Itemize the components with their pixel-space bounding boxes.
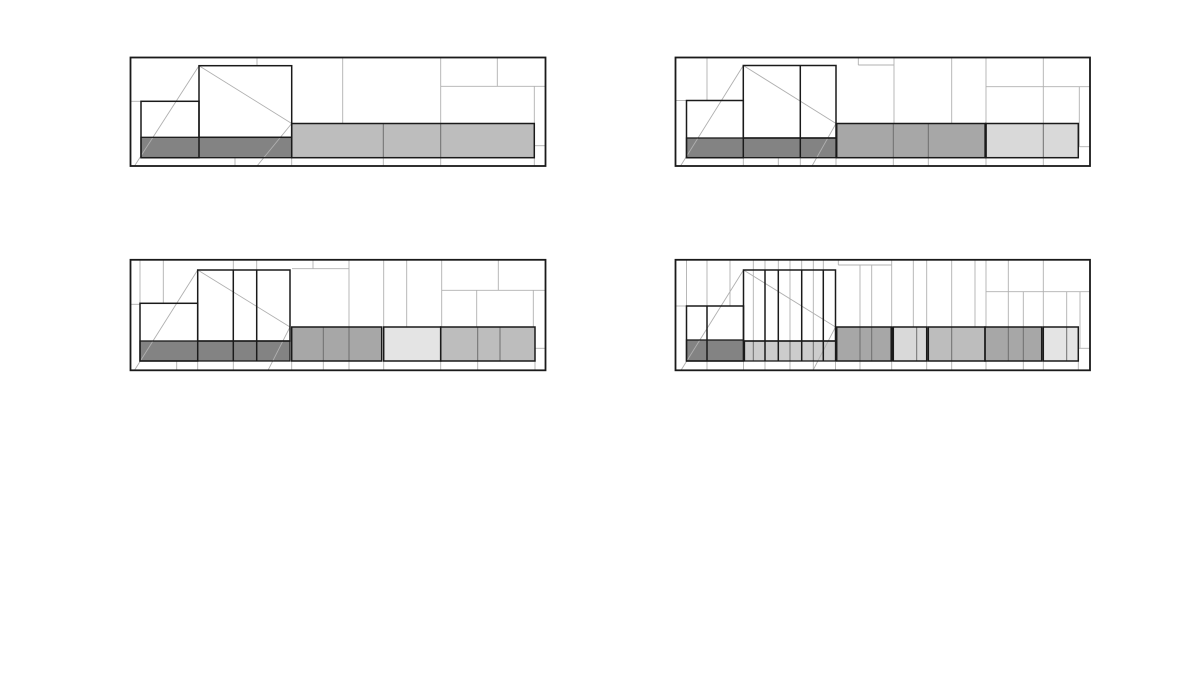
shaded-cell xyxy=(384,327,441,361)
subdivision-line xyxy=(199,66,292,124)
shaded-cell xyxy=(837,124,894,158)
shaded-cell xyxy=(928,327,951,361)
shaded-cell xyxy=(893,327,916,361)
shaded-cell xyxy=(985,327,1008,361)
shaded-cell xyxy=(986,124,1044,158)
shaded-cell xyxy=(1067,327,1079,361)
shaded-cell xyxy=(790,341,802,361)
shaded-cell xyxy=(952,327,985,361)
subdivision-line xyxy=(743,66,836,124)
shaded-cell xyxy=(441,124,535,158)
panel-bottom-left xyxy=(131,260,546,371)
shaded-cell xyxy=(478,327,500,361)
panel-top-right xyxy=(676,58,1091,167)
shaded-cell xyxy=(441,327,478,361)
shaded-cell xyxy=(928,124,985,158)
panel-top-left xyxy=(131,58,546,167)
shaded-cell xyxy=(292,327,324,361)
shaded-cell xyxy=(813,341,823,361)
shaded-cell xyxy=(1043,124,1078,158)
shaded-cell xyxy=(140,341,198,361)
subdivision-line xyxy=(198,270,290,327)
shaded-cell xyxy=(687,340,708,361)
shaded-cell xyxy=(349,327,382,361)
shaded-cell xyxy=(753,341,765,361)
shaded-cell xyxy=(233,341,256,361)
subdivision-line xyxy=(744,270,836,327)
block-outline xyxy=(199,66,292,138)
shaded-cell xyxy=(802,341,814,361)
shaded-cell xyxy=(198,341,234,361)
shaded-cell xyxy=(707,340,744,361)
shaded-cell xyxy=(778,341,790,361)
shaded-cell xyxy=(860,327,872,361)
shaded-cell xyxy=(837,327,860,361)
shaded-cell xyxy=(500,327,535,361)
shaded-cell xyxy=(743,138,800,158)
shaded-cell xyxy=(141,137,199,157)
shaded-cell xyxy=(323,327,349,361)
shaded-cell xyxy=(765,341,778,361)
block-outline xyxy=(198,270,290,341)
block-outline xyxy=(743,66,836,139)
shaded-cell xyxy=(872,327,892,361)
panel-bottom-right xyxy=(676,260,1091,371)
shaded-cell xyxy=(1023,327,1041,361)
figure-canvas xyxy=(0,0,1177,699)
shaded-cell xyxy=(687,138,744,158)
shaded-cell xyxy=(893,124,928,158)
shaded-cell xyxy=(917,327,927,361)
block-outline xyxy=(744,270,836,341)
shaded-cell xyxy=(292,124,384,158)
shaded-cell xyxy=(1008,327,1023,361)
shaded-cell xyxy=(745,341,754,361)
shaded-cell xyxy=(257,341,290,361)
figure-page xyxy=(0,0,1177,699)
shaded-cell xyxy=(823,341,835,361)
shaded-cell xyxy=(1043,327,1066,361)
shaded-cell xyxy=(383,124,440,158)
